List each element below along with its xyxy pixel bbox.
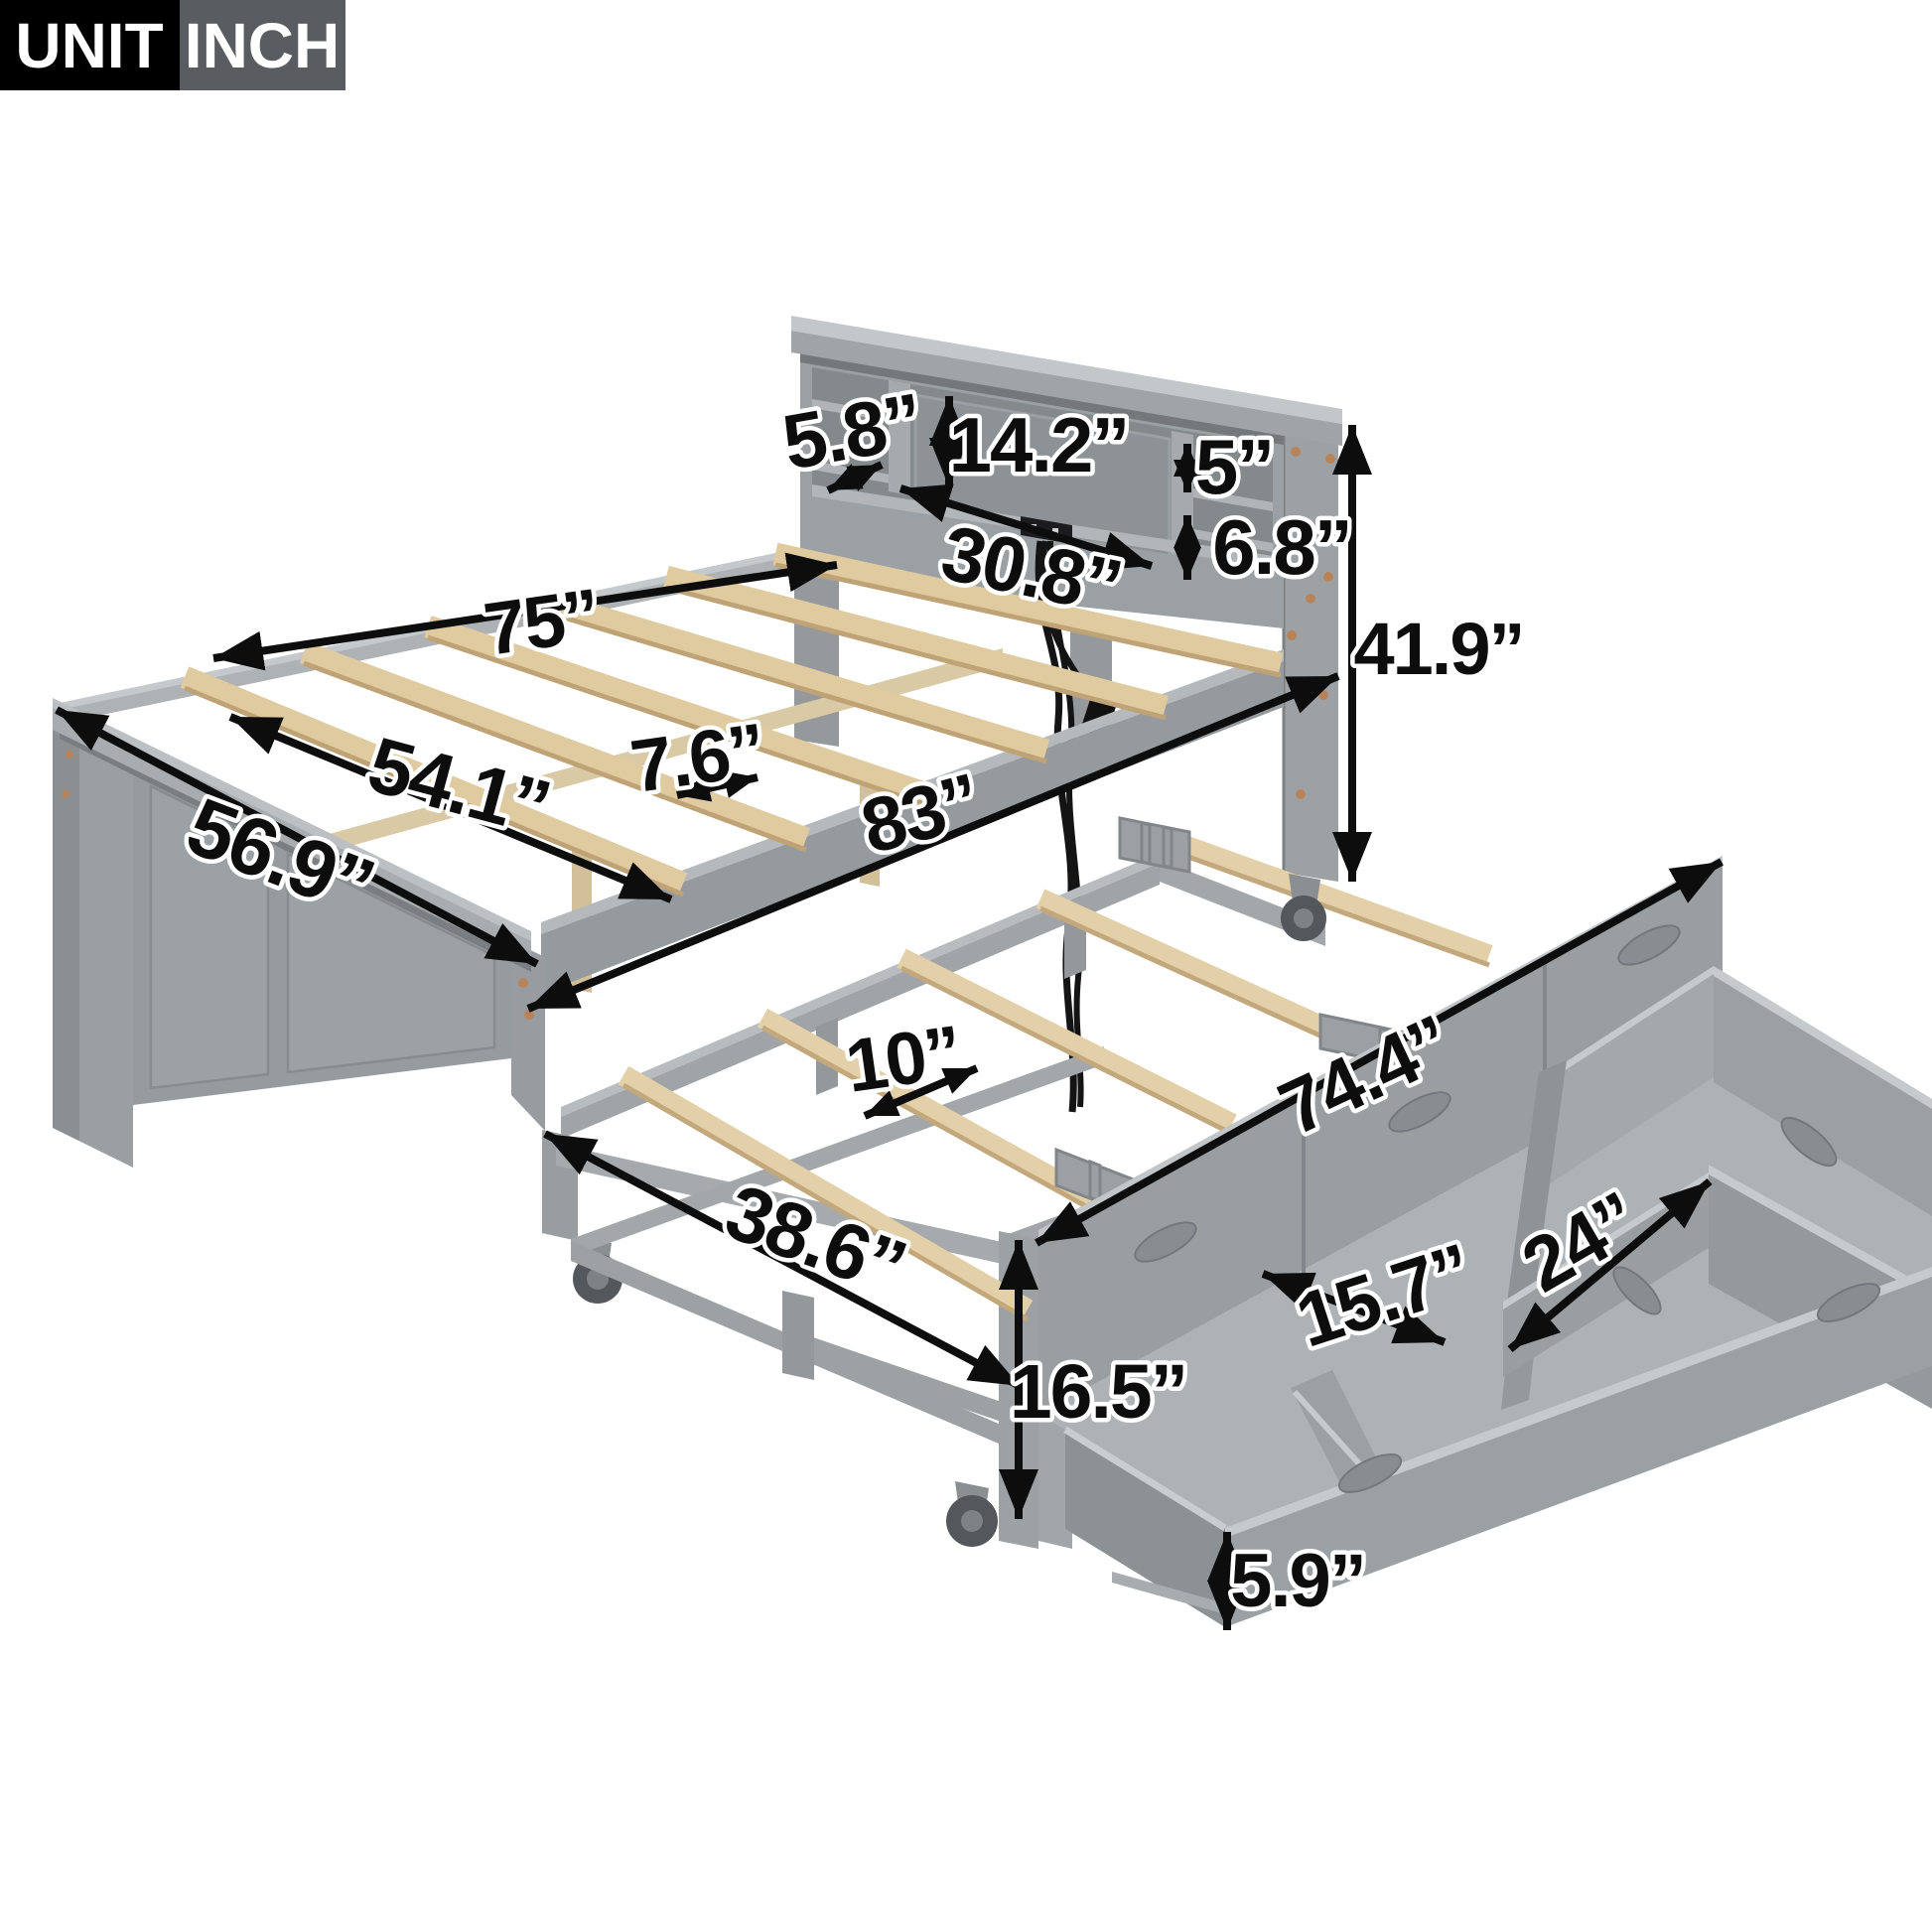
svg-text:14.2”: 14.2” (949, 401, 1129, 488)
svg-text:INCH: INCH (185, 10, 340, 81)
svg-text:10”: 10” (841, 1010, 966, 1108)
svg-text:6.8”: 6.8” (1212, 503, 1350, 591)
svg-text:16.5”: 16.5” (1010, 1349, 1186, 1435)
svg-text:41.9”: 41.9” (1353, 608, 1523, 690)
svg-text:UNIT: UNIT (15, 10, 163, 81)
svg-text:5”: 5” (1195, 423, 1273, 510)
svg-text:5.9”: 5.9” (1230, 1539, 1365, 1623)
svg-text:75”: 75” (480, 573, 605, 671)
